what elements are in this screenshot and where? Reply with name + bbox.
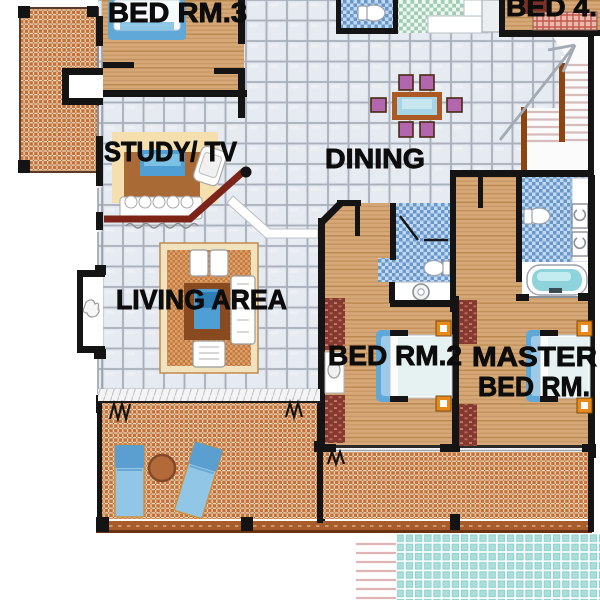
svg-text:MASTER: MASTER	[472, 341, 597, 372]
svg-text:STUDY/ TV: STUDY/ TV	[104, 136, 237, 167]
svg-text:DINING: DINING	[325, 143, 425, 174]
svg-text:BED RM.3: BED RM.3	[108, 0, 247, 28]
svg-text:BED RM.: BED RM.	[478, 371, 590, 402]
svg-text:BED 4.: BED 4.	[506, 0, 597, 22]
svg-text:BED RM.2: BED RM.2	[328, 340, 462, 371]
svg-text:LIVING AREA: LIVING AREA	[116, 284, 287, 315]
